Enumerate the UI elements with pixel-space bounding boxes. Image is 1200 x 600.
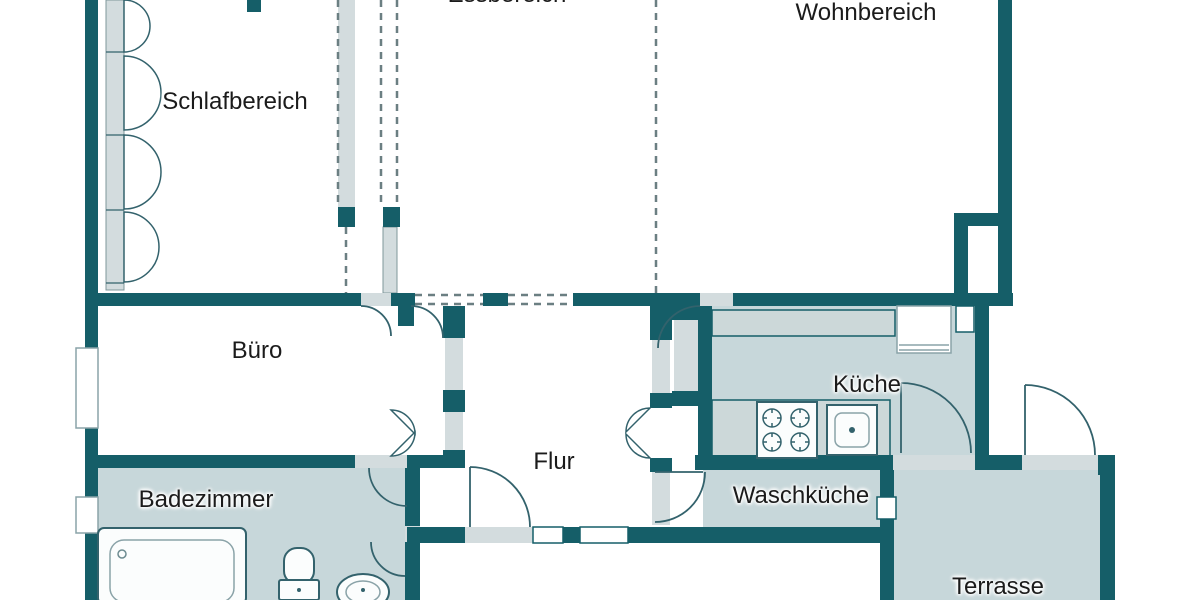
room-label-schlafbereich: Schlafbereich xyxy=(162,88,307,116)
room-label-badezimmer: Badezimmer xyxy=(139,486,274,514)
terrace-door-arc xyxy=(1025,385,1095,455)
room-label-essbereich: Essbereich xyxy=(448,0,567,9)
bedroom-casement-windows xyxy=(106,0,161,290)
terrace-wall-right xyxy=(1100,470,1115,600)
room-label-kueche: Küche xyxy=(833,371,901,399)
terrace-wall-left xyxy=(880,470,894,600)
room-label-waschkueche: Waschküche xyxy=(733,482,870,510)
wall-stub-top xyxy=(247,0,261,12)
outer-wall-right xyxy=(998,0,1012,306)
stove-4-burner xyxy=(757,402,817,458)
bathtub xyxy=(98,528,246,600)
toilet xyxy=(279,548,319,600)
bathroom-window xyxy=(76,497,98,533)
office-window xyxy=(76,348,98,428)
kitchen-wall-right xyxy=(975,306,989,455)
room-label-buero: Büro xyxy=(232,337,283,365)
room-label-flur: Flur xyxy=(533,448,574,476)
entrance-door-arc xyxy=(470,467,530,527)
floor-plan: Schlafbereich Essbereich Wohnbereich Bür… xyxy=(0,0,1200,600)
room-label-terrasse: Terrasse xyxy=(952,573,1044,600)
refrigerator xyxy=(897,306,951,353)
room-label-wohnbereich: Wohnbereich xyxy=(796,0,937,27)
kitchen-wall-left xyxy=(698,306,712,456)
kitchen-sink xyxy=(827,405,877,455)
kitchen-counter-top xyxy=(712,310,895,336)
office-door-arc xyxy=(361,306,391,336)
